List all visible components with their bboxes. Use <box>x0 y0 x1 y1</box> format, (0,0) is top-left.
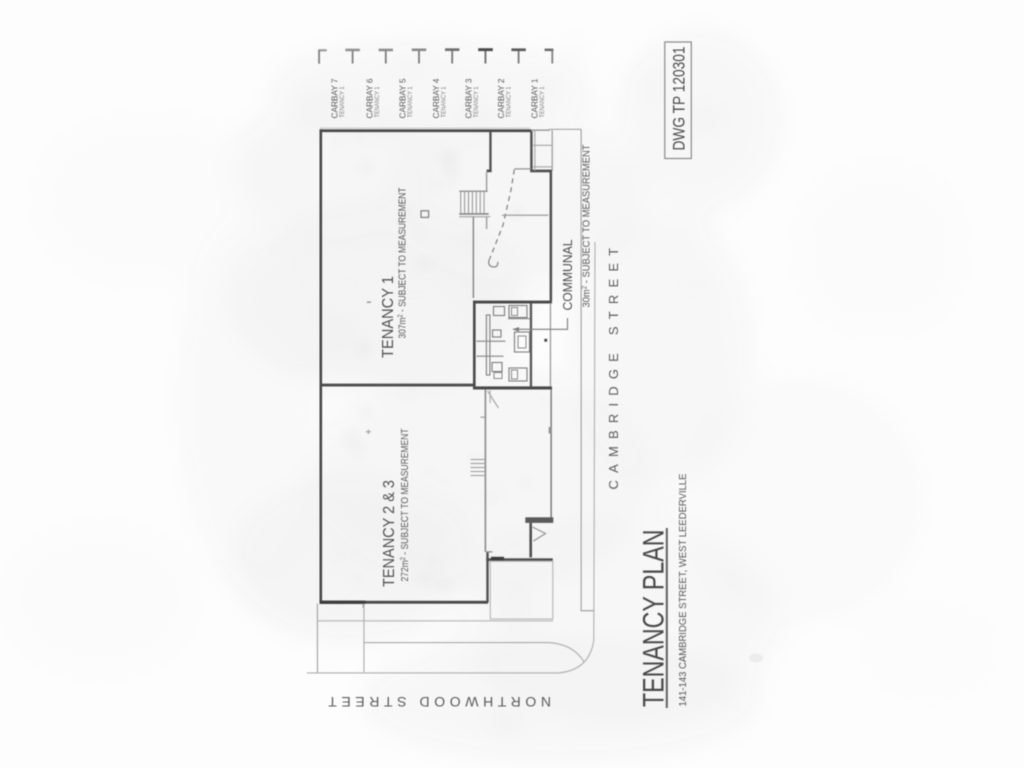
svg-text:TENANCY 1: TENANCY 1 <box>408 86 414 118</box>
svg-text:TENANCY 1: TENANCY 1 <box>340 86 346 118</box>
svg-text:TENANCY 1: TENANCY 1 <box>441 86 447 118</box>
svg-text:COMMUNAL: COMMUNAL <box>560 240 575 311</box>
svg-text:CARBAY 2: CARBAY 2 <box>496 78 506 118</box>
svg-text:CARBAY 3: CARBAY 3 <box>463 78 473 118</box>
svg-text:TENANCY 1: TENANCY 1 <box>375 86 381 118</box>
svg-text:CARBAY 4: CARBAY 4 <box>431 78 441 118</box>
svg-text:TENANCY 1: TENANCY 1 <box>380 276 397 358</box>
svg-text:30m2 - SUBJECT TO MEASUREMENT: 30m2 - SUBJECT TO MEASUREMENT <box>581 144 593 308</box>
svg-text:DWG TP 120301: DWG TP 120301 <box>671 47 689 151</box>
svg-text:TENANCY 1: TENANCY 1 <box>507 86 513 118</box>
svg-text:TENANCY 2 & 3: TENANCY 2 & 3 <box>381 480 398 587</box>
svg-text:CARBAY 5: CARBAY 5 <box>398 78 408 118</box>
svg-text:TENANCY 1: TENANCY 1 <box>474 86 480 118</box>
svg-text:CARBAY 1: CARBAY 1 <box>529 78 539 118</box>
svg-text:CAMBRIDGE STREET: CAMBRIDGE STREET <box>606 241 621 490</box>
svg-text:NORTHWOOD STREET: NORTHWOOD STREET <box>324 694 551 710</box>
svg-text:TENANCY PLAN: TENANCY PLAN <box>638 530 671 708</box>
svg-text:CARBAY 7: CARBAY 7 <box>329 78 339 118</box>
svg-text:141-143 CAMBRIDGE STREET, WEST: 141-143 CAMBRIDGE STREET, WEST LEEDERVIL… <box>677 474 689 707</box>
svg-text:TENANCY 1: TENANCY 1 <box>540 86 546 118</box>
svg-text:CARBAY 6: CARBAY 6 <box>365 78 375 118</box>
